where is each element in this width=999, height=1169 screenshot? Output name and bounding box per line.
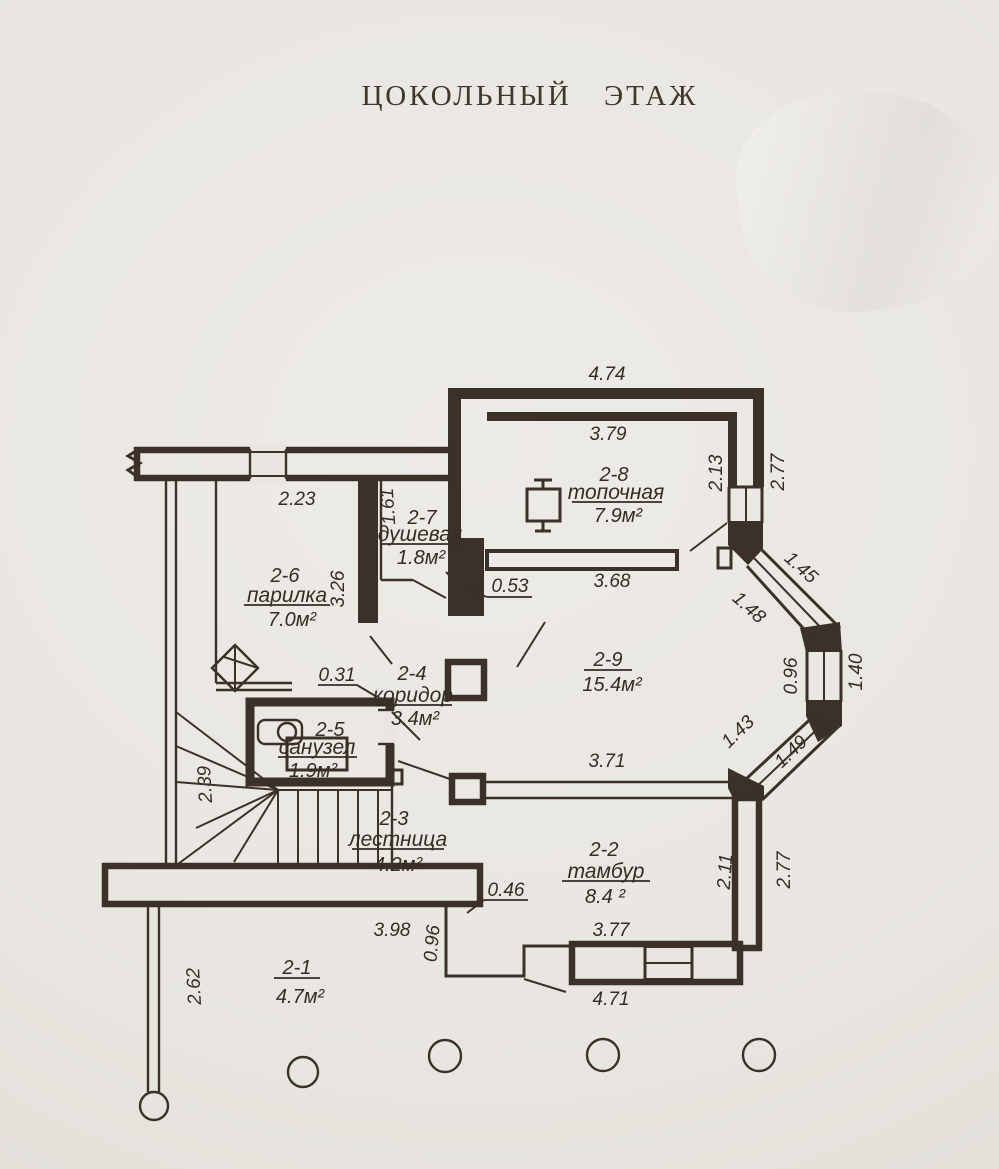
- room-2-6-area: 7.0м²: [268, 609, 318, 631]
- dim-tambur-right-outer: 2.77: [774, 850, 795, 889]
- page-title: ЦОКОЛЬНЫЙ ЭТАЖ: [362, 80, 699, 112]
- dim-porch-step: 0.96: [420, 924, 444, 963]
- dim-parilka-height: 3.26: [328, 570, 349, 607]
- room-2-5-name: санузел: [279, 736, 356, 759]
- dim-tambur-bottom-inner: 3.77: [593, 920, 631, 941]
- room-2-1-area: 4.7м²: [276, 986, 326, 1008]
- room-2-4-name: коридор: [373, 684, 453, 707]
- room-2-2-name: тамбур: [568, 860, 645, 883]
- dim-hall-bottom: 3.71: [589, 751, 626, 772]
- dim-outer-top: 4.74: [589, 364, 626, 385]
- room-2-8-name: топочная: [568, 481, 665, 504]
- room-2-7-area: 1.8м²: [397, 547, 447, 569]
- room-2-3-area: 4.2м²: [374, 854, 424, 876]
- room-2-4-id: 2-4: [397, 663, 427, 685]
- dim-stairs-left: 2.39: [194, 765, 217, 804]
- room-2-2-area: 8.4 ²: [585, 886, 626, 908]
- room-2-3-name: лестница: [348, 828, 447, 851]
- room-2-9-id: 2-9: [593, 649, 623, 671]
- room-2-8-area: 7.9м²: [594, 505, 644, 527]
- room-2-9-area: 15.4м²: [582, 674, 643, 696]
- room-2-7-name: душевая: [378, 523, 462, 546]
- room-2-4-area: 3.4м²: [391, 708, 441, 730]
- dim-parilka-top: 2.23: [278, 489, 316, 510]
- room-2-6-name: парилка: [247, 584, 327, 607]
- dim-stub-031: 0.31: [319, 665, 356, 686]
- room-2-1-id: 2-1: [282, 957, 312, 979]
- dim-partition-368: 3.68: [594, 571, 631, 592]
- floor-plan-svg: ЦОКОЛЬНЫЙ ЭТАЖ: [0, 0, 999, 1169]
- dim-tambur-right-inner: 2.11: [714, 853, 738, 891]
- room-2-2-id: 2-2: [589, 839, 619, 861]
- dim-bay-top-outer: 1.45: [780, 548, 822, 589]
- dim-stub-046: 0.46: [488, 880, 525, 901]
- dim-wall-stub-053: 0.53: [492, 576, 529, 597]
- room-2-5-area: 1.9м²: [289, 760, 339, 782]
- dim-boiler-room-top: 3.79: [590, 424, 627, 445]
- dim-bay-bottom-inner: 1.43: [718, 711, 760, 752]
- dim-tambur-bottom-outer: 4.71: [593, 989, 630, 1010]
- dim-bay-top-inner: 1.48: [728, 588, 770, 629]
- dim-right-window-outer: 2.77: [768, 452, 789, 491]
- dim-porch-left: 2.62: [183, 967, 206, 1006]
- boiler-icon: [527, 480, 560, 531]
- porch-columns: [140, 1039, 775, 1120]
- room-2-3-id: 2-3: [379, 808, 409, 830]
- dim-bay-mid-inner: 0.96: [781, 657, 802, 694]
- dim-right-window-inner: 2.13: [706, 454, 727, 492]
- dim-porch-top: 3.98: [374, 920, 411, 941]
- scanned-floor-plan-page: ЦОКОЛЬНЫЙ ЭТАЖ: [0, 0, 999, 1169]
- dim-bay-mid-outer: 1.40: [846, 653, 867, 690]
- dim-dush-height: 1.61: [377, 487, 401, 525]
